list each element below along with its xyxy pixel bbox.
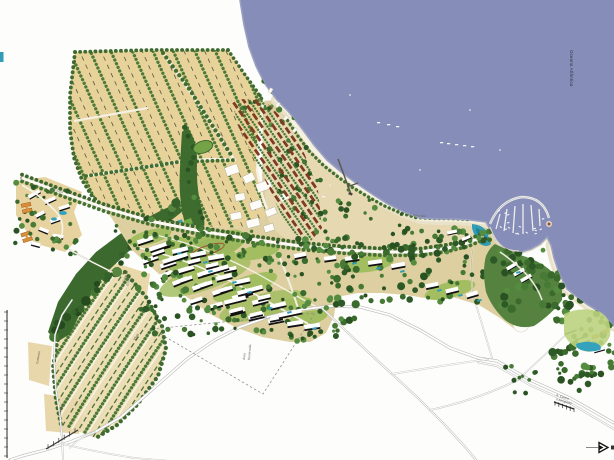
- svg-text:Área: Área: [242, 353, 246, 360]
- svg-text:Oceano Atlântico: Oceano Atlântico: [569, 50, 574, 87]
